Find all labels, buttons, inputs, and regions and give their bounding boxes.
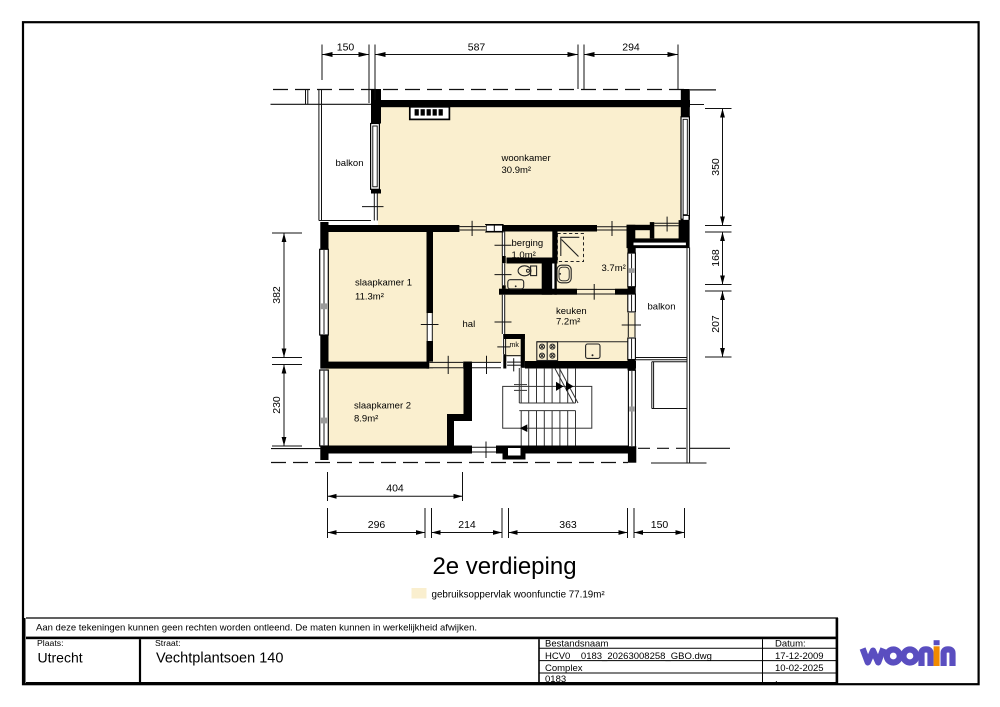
svg-text:slaapkamer 1: slaapkamer 1 — [355, 278, 412, 289]
svg-text:mk: mk — [510, 342, 520, 349]
svg-text:214: 214 — [458, 519, 476, 531]
svg-text:Plaats:: Plaats: — [37, 638, 64, 648]
svg-text:balkon: balkon — [648, 302, 676, 313]
svg-text:Datum:: Datum: — [775, 639, 806, 650]
svg-text:587: 587 — [468, 42, 486, 54]
svg-text:3.7m²: 3.7m² — [602, 263, 626, 274]
svg-text:Vechtplantsoen 140: Vechtplantsoen 140 — [156, 651, 283, 667]
svg-text:382: 382 — [271, 286, 283, 304]
svg-text:berging: berging — [512, 238, 544, 249]
svg-text:.: . — [775, 674, 778, 685]
svg-text:168: 168 — [710, 249, 722, 267]
svg-text:0183: 0183 — [545, 674, 566, 685]
svg-text:2e verdieping: 2e verdieping — [432, 553, 576, 580]
svg-text:slaapkamer 2: slaapkamer 2 — [354, 401, 411, 412]
svg-text:Utrecht: Utrecht — [38, 650, 83, 666]
svg-text:gebruiksoppervlak woonfunctie: gebruiksoppervlak woonfunctie 77.19m² — [432, 590, 606, 601]
svg-text:150: 150 — [651, 519, 669, 531]
svg-text:17-12-2009: 17-12-2009 — [775, 651, 824, 662]
svg-text:294: 294 — [622, 42, 640, 54]
svg-text:Complex: Complex — [545, 663, 583, 674]
svg-text:Bestandsnaam: Bestandsnaam — [545, 639, 608, 650]
svg-text:296: 296 — [368, 519, 386, 531]
svg-text:Straat:: Straat: — [155, 638, 181, 648]
svg-text:7.2m²: 7.2m² — [556, 317, 580, 328]
svg-text:11.3m²: 11.3m² — [355, 292, 384, 303]
svg-text:230: 230 — [271, 396, 283, 414]
svg-text:150: 150 — [337, 42, 355, 54]
svg-text:balkon: balkon — [336, 158, 364, 169]
svg-text:8.9m²: 8.9m² — [354, 414, 378, 425]
svg-text:hal: hal — [463, 319, 476, 330]
svg-text:keuken: keuken — [556, 306, 587, 317]
svg-text:404: 404 — [386, 483, 404, 495]
svg-text:HCV0__0183_20263008258_GBO.dwg: HCV0__0183_20263008258_GBO.dwg — [545, 651, 712, 662]
svg-text:30.9m²: 30.9m² — [502, 165, 532, 176]
svg-text:10-02-2025: 10-02-2025 — [775, 663, 824, 674]
svg-text:207: 207 — [710, 315, 722, 333]
svg-text:woonkamer: woonkamer — [501, 153, 551, 164]
svg-text:1.0m²: 1.0m² — [512, 250, 536, 261]
svg-text:350: 350 — [710, 158, 722, 176]
svg-text:Aan deze tekeningen kunnen gee: Aan deze tekeningen kunnen geen rechten … — [36, 623, 477, 634]
svg-text:363: 363 — [559, 519, 577, 531]
